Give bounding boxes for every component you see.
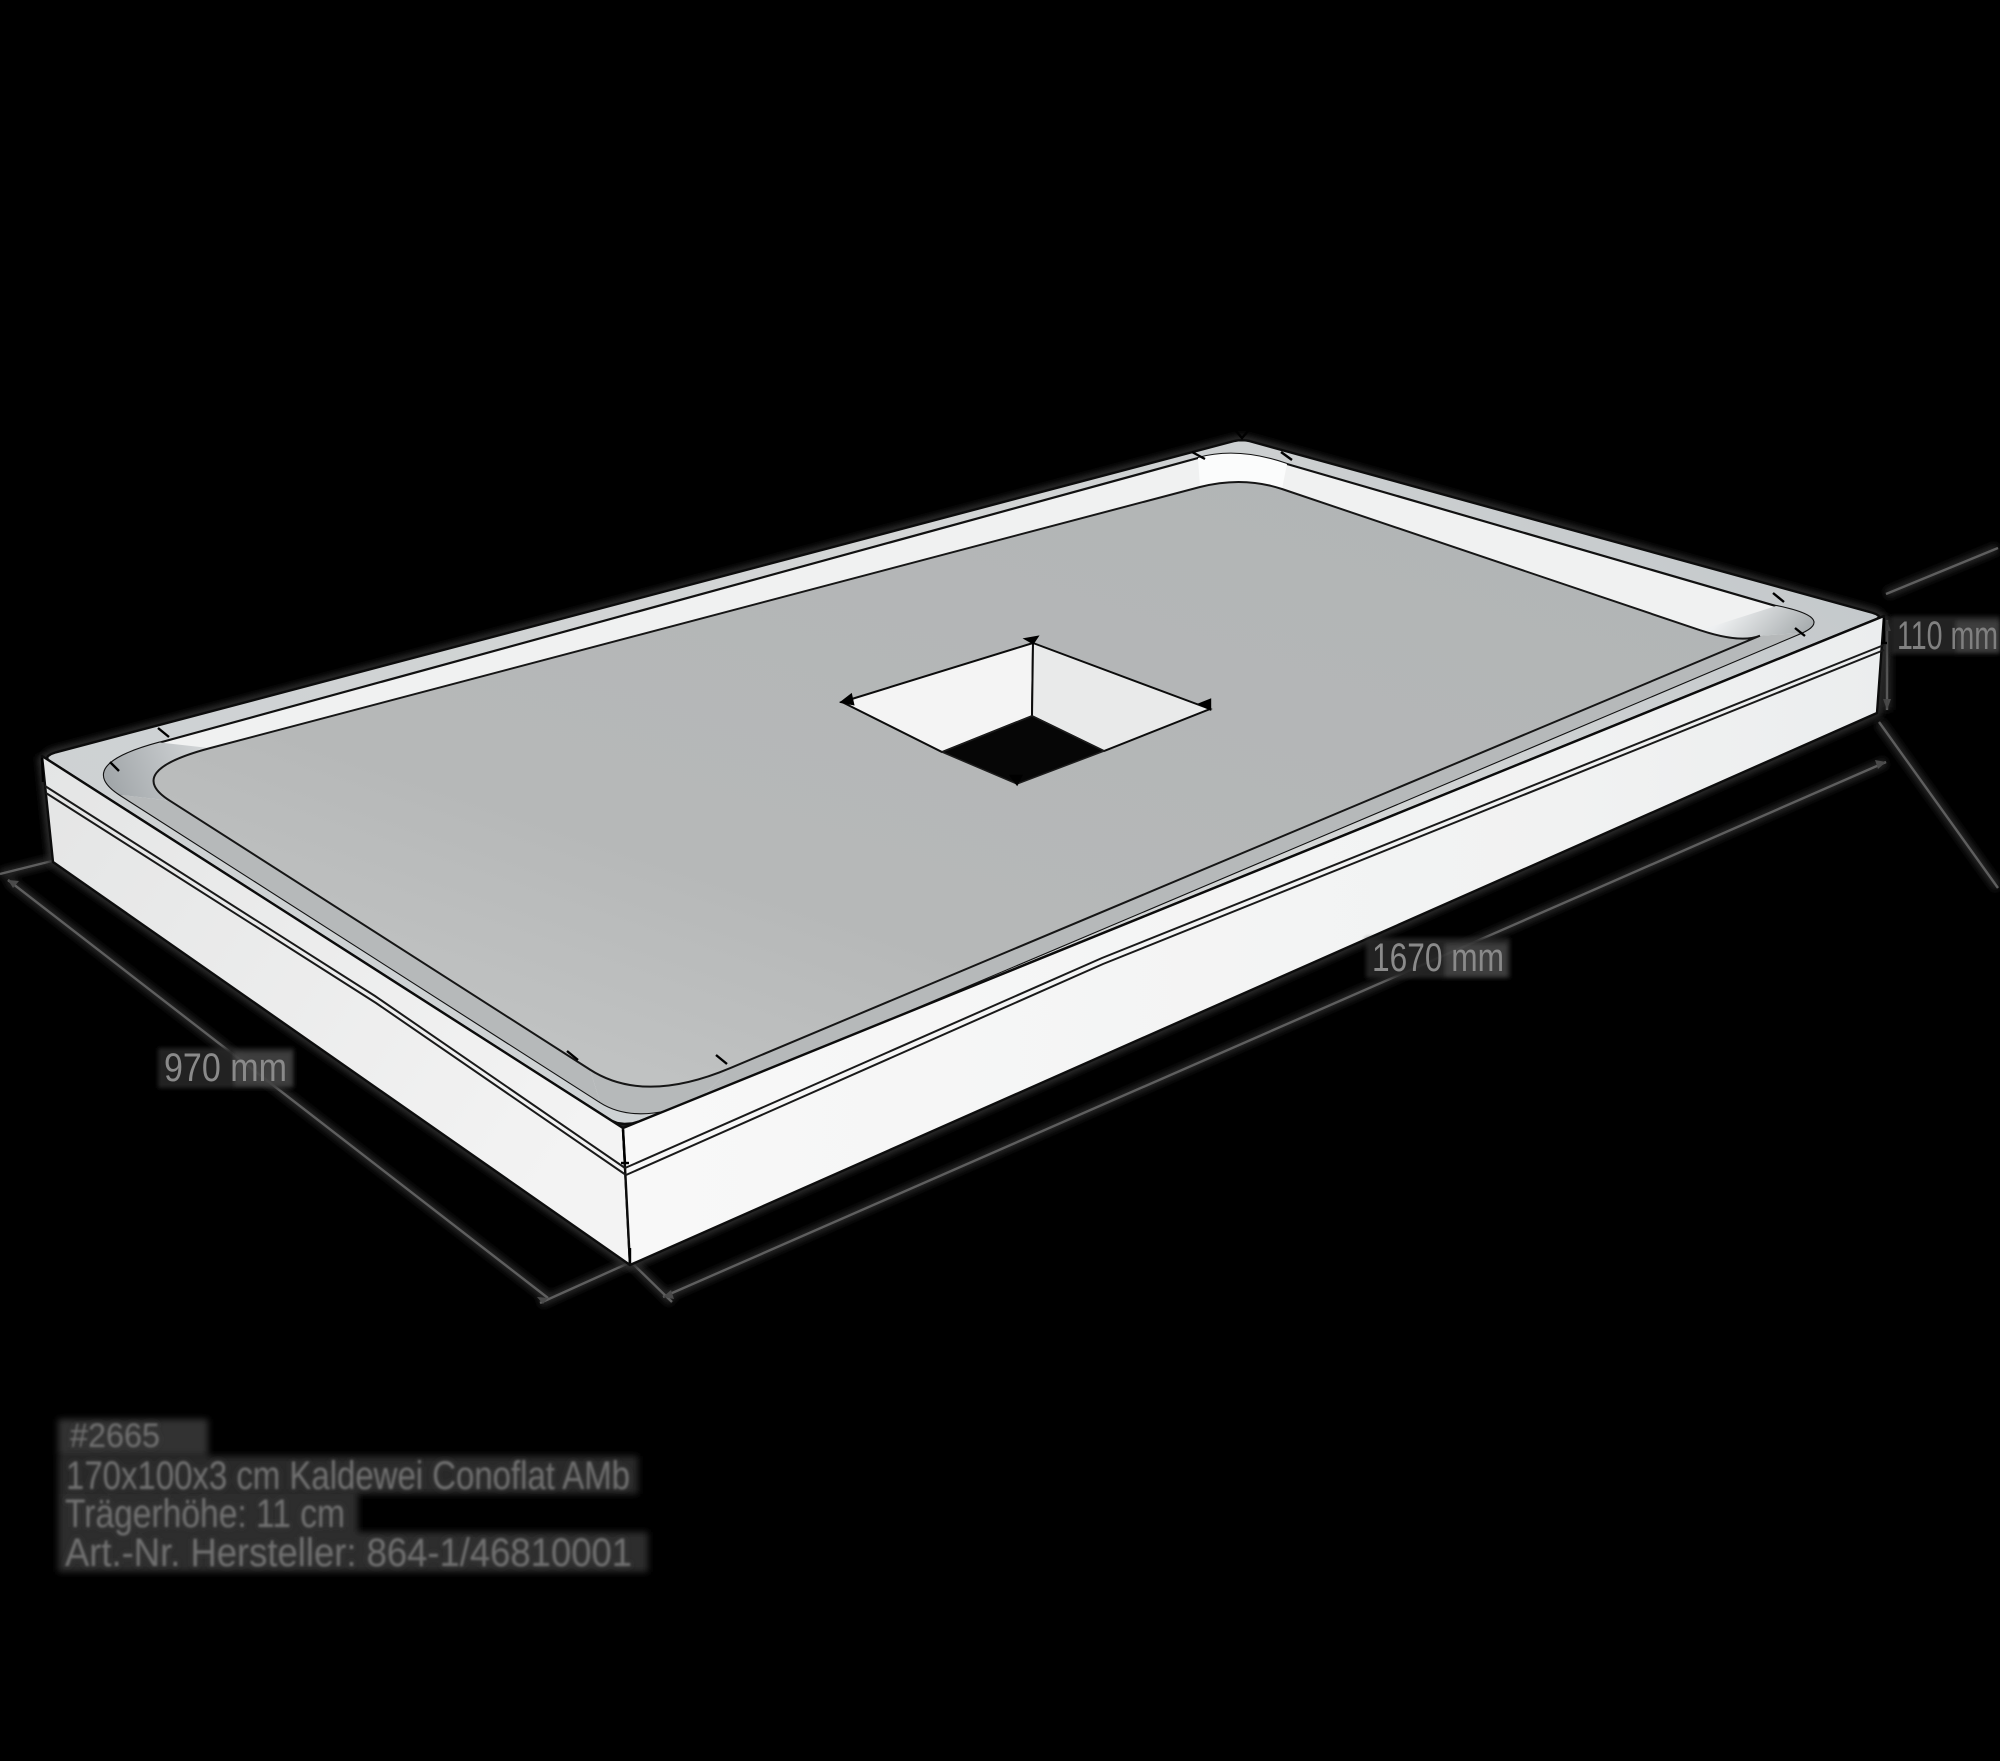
svg-text:Art.-Nr. Hersteller: 864-1/468: Art.-Nr. Hersteller: 864-1/46810001	[65, 1531, 632, 1575]
svg-text:Trägerhöhe: 11 cm: Trägerhöhe: 11 cm	[65, 1492, 345, 1536]
svg-text:970 mm: 970 mm	[164, 1046, 287, 1090]
svg-text:1670 mm: 1670 mm	[1372, 936, 1504, 980]
svg-text:110 mm: 110 mm	[1897, 614, 1998, 658]
svg-text:#2665: #2665	[70, 1417, 160, 1455]
